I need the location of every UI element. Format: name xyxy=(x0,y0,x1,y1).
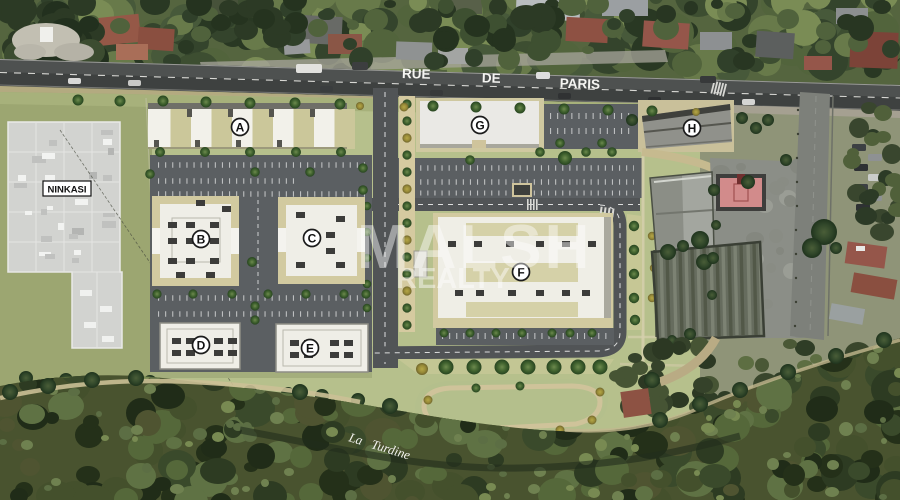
svg-text:E: E xyxy=(306,341,314,355)
svg-text:B: B xyxy=(197,232,206,246)
svg-text:D: D xyxy=(197,338,206,352)
svg-text:DE: DE xyxy=(482,70,501,86)
svg-text:G: G xyxy=(475,118,484,132)
svg-text:C: C xyxy=(308,231,317,245)
svg-text:REALTY: REALTY xyxy=(396,263,510,295)
svg-text:RUE: RUE xyxy=(402,66,431,82)
svg-text:A: A xyxy=(236,120,245,134)
svg-text:H: H xyxy=(688,121,697,135)
svg-text:PARIS: PARIS xyxy=(560,76,601,92)
svg-text:NINKASI: NINKASI xyxy=(47,185,86,196)
